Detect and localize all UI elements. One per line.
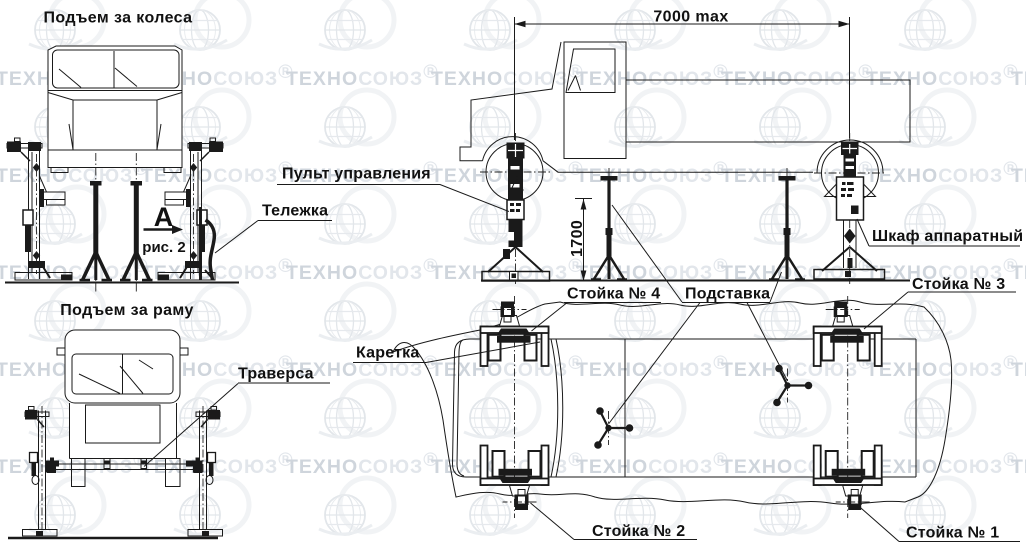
- svg-text:рис. 2: рис. 2: [142, 239, 185, 256]
- svg-text:Тележка: Тележка: [262, 203, 328, 220]
- svg-text:1700: 1700: [569, 220, 586, 257]
- svg-text:Пульт управления: Пульт управления: [282, 166, 431, 183]
- svg-text:Траверса: Траверса: [238, 366, 314, 383]
- svg-text:Стойка № 1: Стойка № 1: [906, 525, 999, 542]
- svg-text:Шкаф аппаратный: Шкаф аппаратный: [872, 228, 1023, 245]
- svg-text:Подставка: Подставка: [685, 286, 770, 303]
- svg-text:7000 max: 7000 max: [653, 9, 728, 26]
- svg-text:А: А: [154, 202, 174, 232]
- svg-text:Подъем за колеса: Подъем за колеса: [44, 10, 193, 27]
- svg-text:Стойка № 3: Стойка № 3: [912, 276, 1005, 293]
- svg-text:Стойка № 2: Стойка № 2: [592, 523, 685, 540]
- svg-text:Каретка: Каретка: [356, 345, 419, 362]
- svg-text:Стойка № 4: Стойка № 4: [567, 286, 660, 303]
- svg-text:Подъем за раму: Подъем за раму: [60, 302, 194, 319]
